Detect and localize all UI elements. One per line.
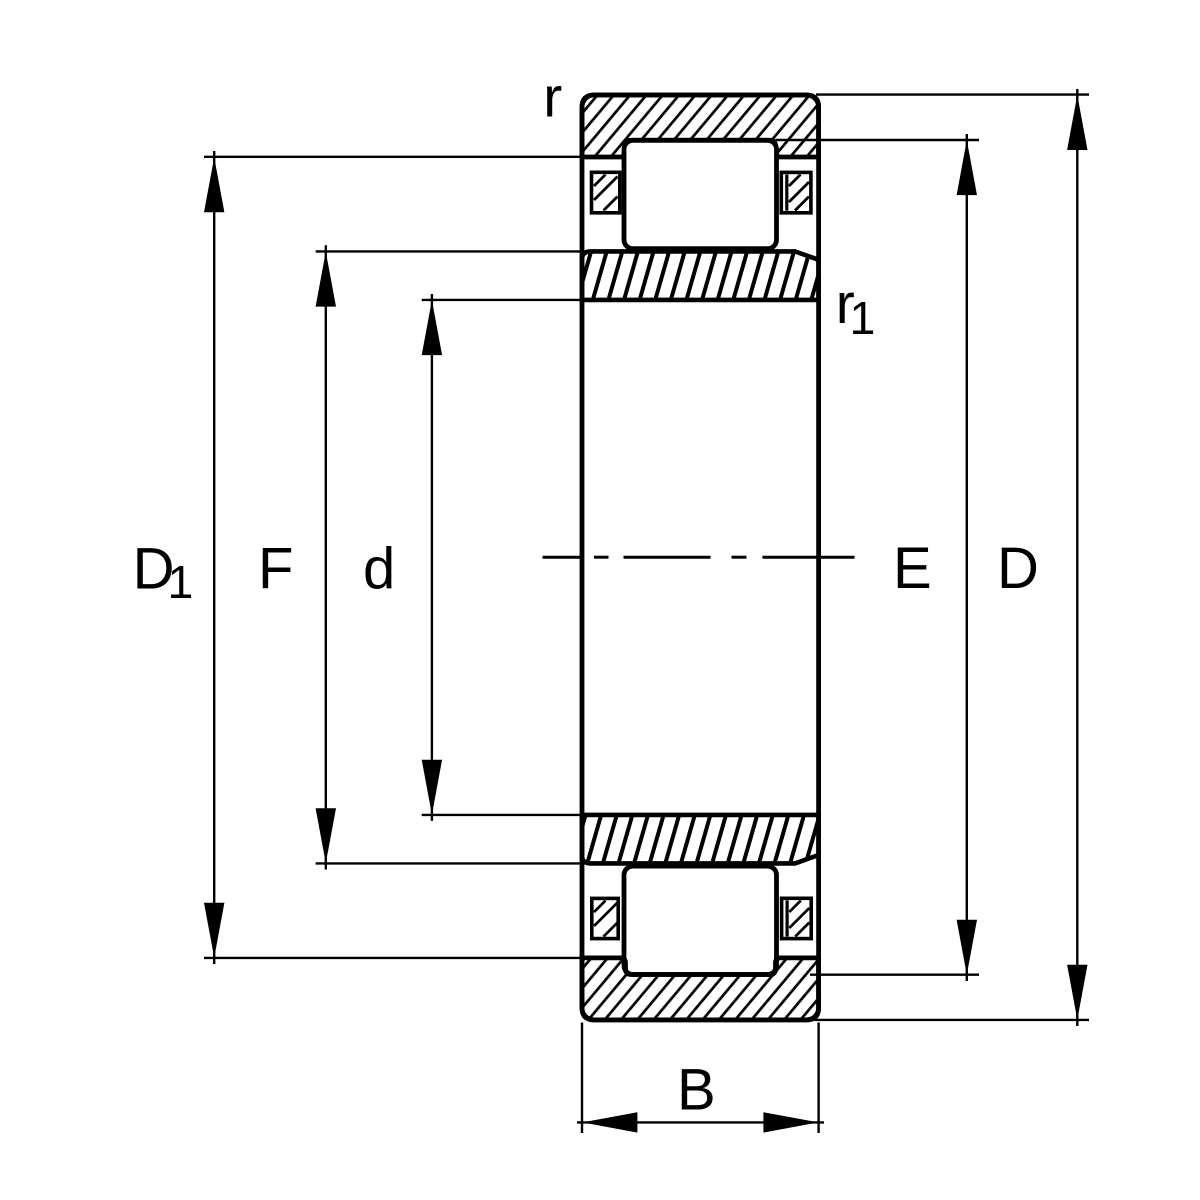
svg-text:D: D <box>997 536 1039 601</box>
svg-text:F: F <box>258 537 293 602</box>
svg-text:E: E <box>893 536 932 601</box>
svg-text:B: B <box>677 1058 716 1123</box>
svg-text:d: d <box>363 537 395 602</box>
svg-text:r: r <box>543 66 562 130</box>
